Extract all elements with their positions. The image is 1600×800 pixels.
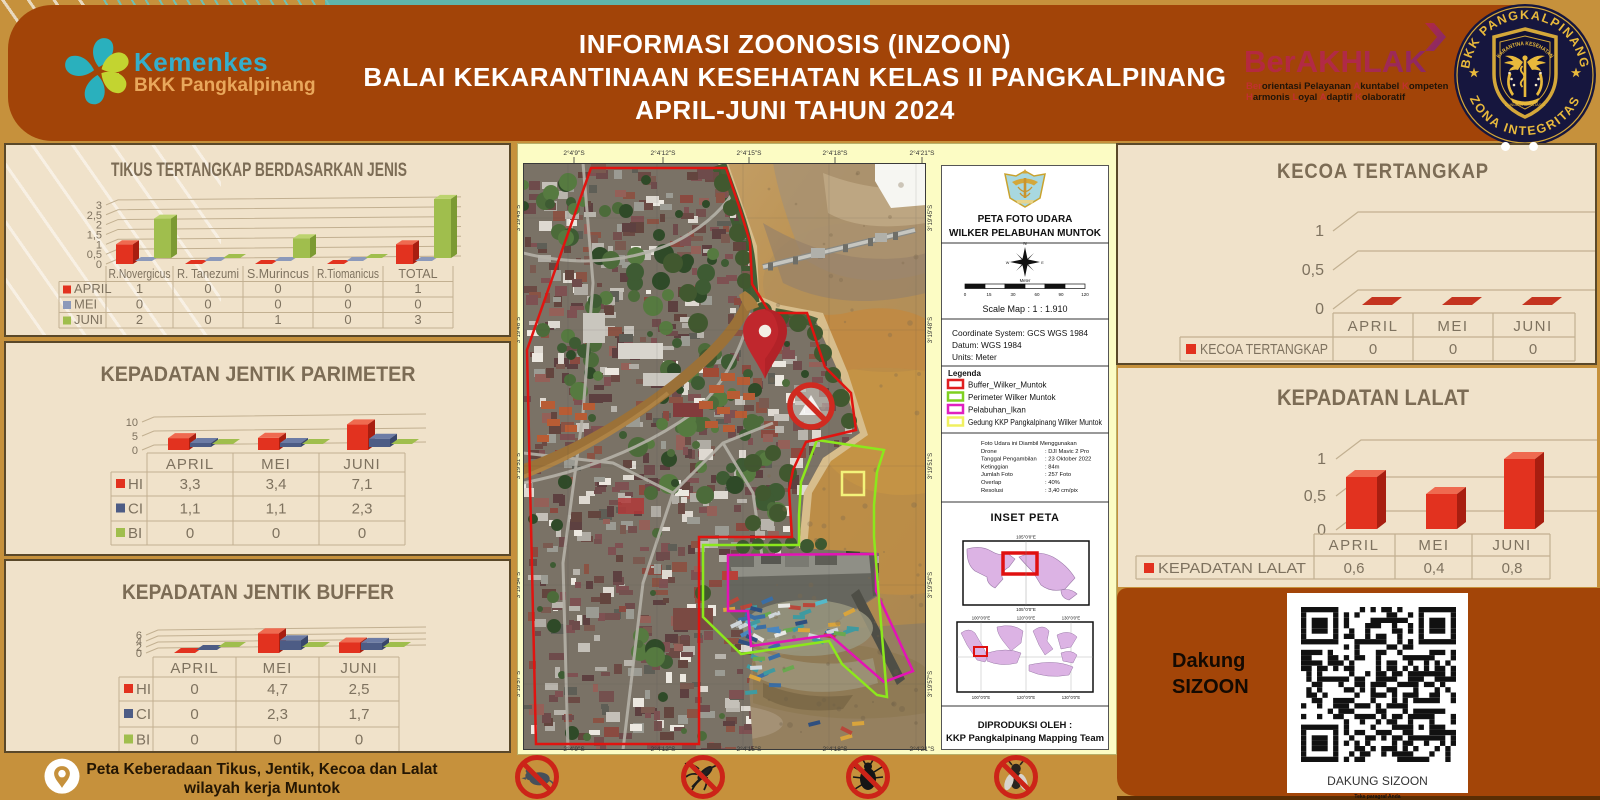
svg-text:Tanggal Pengambilan: Tanggal Pengambilan	[981, 457, 1037, 463]
svg-text:0: 0	[136, 297, 143, 312]
svg-text:130°0'0"E: 130°0'0"E	[1062, 616, 1081, 621]
svg-text:120°0'0"E: 120°0'0"E	[1017, 616, 1036, 621]
svg-text:KEPADATAN JENTIK PARIMETER: KEPADATAN JENTIK PARIMETER	[101, 363, 416, 386]
svg-text:Datum: WGS 1984: Datum: WGS 1984	[952, 340, 1022, 350]
svg-text:KECOA TERTANGKAP: KECOA TERTANGKAP	[1200, 341, 1328, 358]
svg-text:Ketinggian: Ketinggian	[981, 464, 1008, 470]
svg-text:MEI: MEI	[263, 660, 293, 677]
svg-text:JUNI: JUNI	[1513, 318, 1552, 335]
svg-text:3: 3	[96, 200, 102, 212]
svg-text:2°4'15"S: 2°4'15"S	[737, 745, 763, 753]
svg-text:1: 1	[136, 281, 143, 296]
svg-text:E: E	[1041, 261, 1044, 265]
svg-text:3°19'57"S: 3°19'57"S	[928, 671, 934, 697]
svg-text:2,5: 2,5	[349, 681, 370, 698]
svg-text:10: 10	[126, 417, 138, 429]
svg-text:0: 0	[274, 281, 281, 296]
svg-text:0: 0	[274, 297, 281, 312]
svg-text:2,3: 2,3	[352, 501, 373, 518]
svg-text:3,3: 3,3	[180, 476, 201, 493]
svg-text:JUNI: JUNI	[340, 660, 377, 677]
svg-text:1: 1	[1317, 451, 1326, 468]
svg-text:Units: Meter: Units: Meter	[952, 352, 997, 362]
svg-text:KEPADATAN LALAT: KEPADATAN LALAT	[1277, 385, 1470, 410]
svg-text:0: 0	[132, 445, 138, 457]
svg-text:Meter: Meter	[1020, 278, 1031, 283]
svg-text:: 23 Oktober 2022: : 23 Oktober 2022	[1045, 457, 1091, 463]
svg-text:1: 1	[1315, 223, 1324, 240]
svg-text:0: 0	[204, 281, 211, 296]
svg-text:HI: HI	[128, 476, 143, 493]
svg-text:0: 0	[1315, 301, 1324, 318]
svg-text:APRIL: APRIL	[1329, 537, 1380, 554]
svg-text:120: 120	[1081, 292, 1089, 297]
svg-text:APRIL: APRIL	[170, 660, 218, 677]
svg-text:6: 6	[136, 630, 142, 642]
svg-text:JUNI: JUNI	[343, 456, 380, 473]
svg-text:R.Tiomanicus: R.Tiomanicus	[317, 267, 379, 281]
svg-text:WILKER PELABUHAN MUNTOK: WILKER PELABUHAN MUNTOK	[949, 228, 1102, 239]
svg-text:: 3,40 cm/pix: : 3,40 cm/pix	[1045, 488, 1078, 494]
svg-text:0: 0	[186, 525, 194, 542]
svg-text:3,4: 3,4	[266, 476, 287, 493]
svg-text:PETA FOTO UDARA: PETA FOTO UDARA	[978, 214, 1073, 225]
svg-text:3°19'48"S: 3°19'48"S	[517, 317, 522, 343]
svg-text:3°19'54"S: 3°19'54"S	[517, 572, 522, 598]
svg-text:3°19'57"S: 3°19'57"S	[517, 671, 522, 697]
svg-text:100°0'0"E: 100°0'0"E	[972, 616, 991, 621]
svg-text:0: 0	[204, 297, 211, 312]
svg-text:MEI: MEI	[74, 297, 97, 312]
svg-text:90: 90	[1058, 292, 1064, 297]
svg-text:INSET PETA: INSET PETA	[991, 512, 1060, 524]
svg-text:APRIL: APRIL	[166, 456, 214, 473]
svg-text:1,7: 1,7	[349, 706, 370, 723]
svg-text:0: 0	[204, 312, 211, 327]
svg-text:W: W	[1006, 261, 1010, 265]
svg-text:MEI: MEI	[1437, 318, 1468, 335]
svg-text:3°19'48"S: 3°19'48"S	[928, 317, 934, 343]
svg-text:30: 30	[1010, 292, 1016, 297]
svg-text:2°4'18"S: 2°4'18"S	[823, 149, 849, 157]
svg-text:0: 0	[355, 732, 363, 749]
svg-text:5: 5	[132, 431, 138, 443]
svg-text:: 257 Foto: : 257 Foto	[1045, 472, 1071, 478]
svg-text:BI: BI	[136, 732, 150, 749]
svg-text:: 84m: : 84m	[1045, 464, 1060, 470]
svg-text:Scale Map : 1 : 1.910: Scale Map : 1 : 1.910	[982, 304, 1067, 314]
svg-text:R. Tanezumi: R. Tanezumi	[177, 267, 239, 281]
svg-text:2°4'9"S: 2°4'9"S	[563, 745, 585, 753]
svg-text:15: 15	[986, 292, 992, 297]
svg-text:0: 0	[1449, 341, 1457, 358]
svg-text:0: 0	[414, 297, 421, 312]
svg-text:0: 0	[344, 281, 351, 296]
svg-text:N: N	[1023, 241, 1026, 246]
svg-text:0: 0	[1317, 522, 1326, 539]
svg-text:CI: CI	[136, 706, 151, 723]
svg-text:2°4'18"S: 2°4'18"S	[823, 745, 849, 753]
svg-text:0,5: 0,5	[1304, 488, 1326, 505]
svg-text:KEPADATAN JENTIK BUFFER: KEPADATAN JENTIK BUFFER	[122, 581, 394, 604]
svg-text:Jumlah Foto: Jumlah Foto	[981, 472, 1013, 478]
svg-text:MEI: MEI	[1418, 537, 1449, 554]
svg-text:MEI: MEI	[261, 456, 291, 473]
svg-text:R.Novergicus: R.Novergicus	[109, 267, 171, 281]
svg-text:CI: CI	[128, 501, 143, 518]
svg-text:7,1: 7,1	[352, 476, 373, 493]
svg-text:0: 0	[1529, 341, 1537, 358]
svg-text:JUNI: JUNI	[1492, 537, 1531, 554]
svg-text:1,1: 1,1	[266, 501, 287, 518]
svg-text:Foto Udara ini Diambil Menggun: Foto Udara ini Diambil Menggunakan	[981, 441, 1077, 447]
svg-text:KKP Pangkalpinang Mapping Team: KKP Pangkalpinang Mapping Team	[946, 733, 1104, 744]
svg-text:Buffer_Wilker_Muntok: Buffer_Wilker_Muntok	[968, 381, 1048, 390]
svg-text:KECOA TERTANGKAP: KECOA TERTANGKAP	[1277, 160, 1489, 183]
svg-text:0: 0	[273, 732, 281, 749]
svg-text:2°4'9"S: 2°4'9"S	[563, 149, 585, 157]
svg-text:2°4'12"S: 2°4'12"S	[651, 745, 677, 753]
svg-text:3°19'45"S: 3°19'45"S	[517, 205, 522, 231]
svg-text:BI: BI	[128, 525, 142, 542]
svg-text:Overlap: Overlap	[981, 480, 1001, 486]
svg-text:1,1: 1,1	[180, 501, 201, 518]
svg-text:1: 1	[274, 312, 281, 327]
svg-text:Gedung KKP Pangkalpinang Wilke: Gedung KKP Pangkalpinang Wilker Muntok	[968, 418, 1103, 427]
svg-text:Coordinate System: GCS WGS 198: Coordinate System: GCS WGS 1984	[952, 328, 1088, 338]
svg-text:KEPADATAN LALAT: KEPADATAN LALAT	[1158, 560, 1306, 577]
svg-text:60: 60	[1034, 292, 1040, 297]
svg-text:HI: HI	[136, 681, 151, 698]
svg-text:0,4: 0,4	[1424, 560, 1445, 577]
svg-text:APRIL: APRIL	[74, 281, 112, 296]
svg-text:0: 0	[190, 732, 198, 749]
svg-text:0,5: 0,5	[1302, 262, 1324, 279]
svg-text:2°4'21"S: 2°4'21"S	[910, 149, 936, 157]
svg-text:JUNI: JUNI	[74, 312, 103, 327]
svg-text:TIKUS TERTANGKAP BERDASARKAN J: TIKUS TERTANGKAP BERDASARKAN JENIS	[111, 160, 407, 181]
svg-text:0: 0	[1369, 341, 1377, 358]
svg-text:1: 1	[414, 281, 421, 296]
svg-text:100°0'0"E: 100°0'0"E	[972, 695, 991, 700]
svg-text:0: 0	[358, 525, 366, 542]
svg-text:Pelabuhan_Ikan: Pelabuhan_Ikan	[968, 406, 1026, 415]
svg-text:2°4'15"S: 2°4'15"S	[737, 149, 763, 157]
svg-text:TOTAL: TOTAL	[398, 267, 437, 281]
svg-text:2: 2	[136, 312, 143, 327]
svg-text:2,3: 2,3	[267, 706, 288, 723]
svg-text:3°19'54"S: 3°19'54"S	[928, 572, 934, 598]
svg-text:0: 0	[344, 297, 351, 312]
svg-text:0: 0	[272, 525, 280, 542]
svg-text:0: 0	[964, 292, 967, 297]
svg-text:S.Murincus: S.Murincus	[247, 267, 309, 281]
svg-text:4,7: 4,7	[267, 681, 288, 698]
svg-text:DUNIADA KESATASIA: DUNIADA KESATASIA	[1505, 102, 1546, 107]
svg-text:APRIL: APRIL	[1348, 318, 1399, 335]
svg-text:130°0'0"E: 130°0'0"E	[1062, 695, 1081, 700]
svg-text:Drone: Drone	[981, 449, 997, 455]
svg-text:105°0'0"E: 105°0'0"E	[1016, 535, 1036, 540]
svg-text:Legenda: Legenda	[948, 369, 981, 378]
svg-text:3°19'51"S: 3°19'51"S	[517, 453, 522, 479]
svg-text:0: 0	[190, 706, 198, 723]
svg-text:0: 0	[344, 312, 351, 327]
svg-text:3°19'51"S: 3°19'51"S	[928, 453, 934, 479]
svg-text:3°19'45"S: 3°19'45"S	[928, 205, 934, 231]
svg-text:2°4'12"S: 2°4'12"S	[651, 149, 677, 157]
svg-text:Resolusi: Resolusi	[981, 488, 1003, 494]
svg-text:: DJI Mavic 2 Pro: : DJI Mavic 2 Pro	[1045, 449, 1089, 455]
svg-text:2°4'21"S: 2°4'21"S	[910, 745, 936, 753]
svg-text:0,8: 0,8	[1502, 560, 1523, 577]
svg-text:105°0'0"E: 105°0'0"E	[1016, 607, 1036, 612]
svg-text:3: 3	[414, 312, 421, 327]
svg-text:120°0'0"E: 120°0'0"E	[1017, 695, 1036, 700]
svg-text:0,6: 0,6	[1344, 560, 1365, 577]
svg-text:: 40%: : 40%	[1045, 480, 1060, 486]
svg-text:DIPRODUKSI OLEH :: DIPRODUKSI OLEH :	[978, 720, 1072, 731]
svg-text:Perimeter Wilker Muntok: Perimeter Wilker Muntok	[968, 393, 1057, 402]
svg-text:0: 0	[190, 681, 198, 698]
